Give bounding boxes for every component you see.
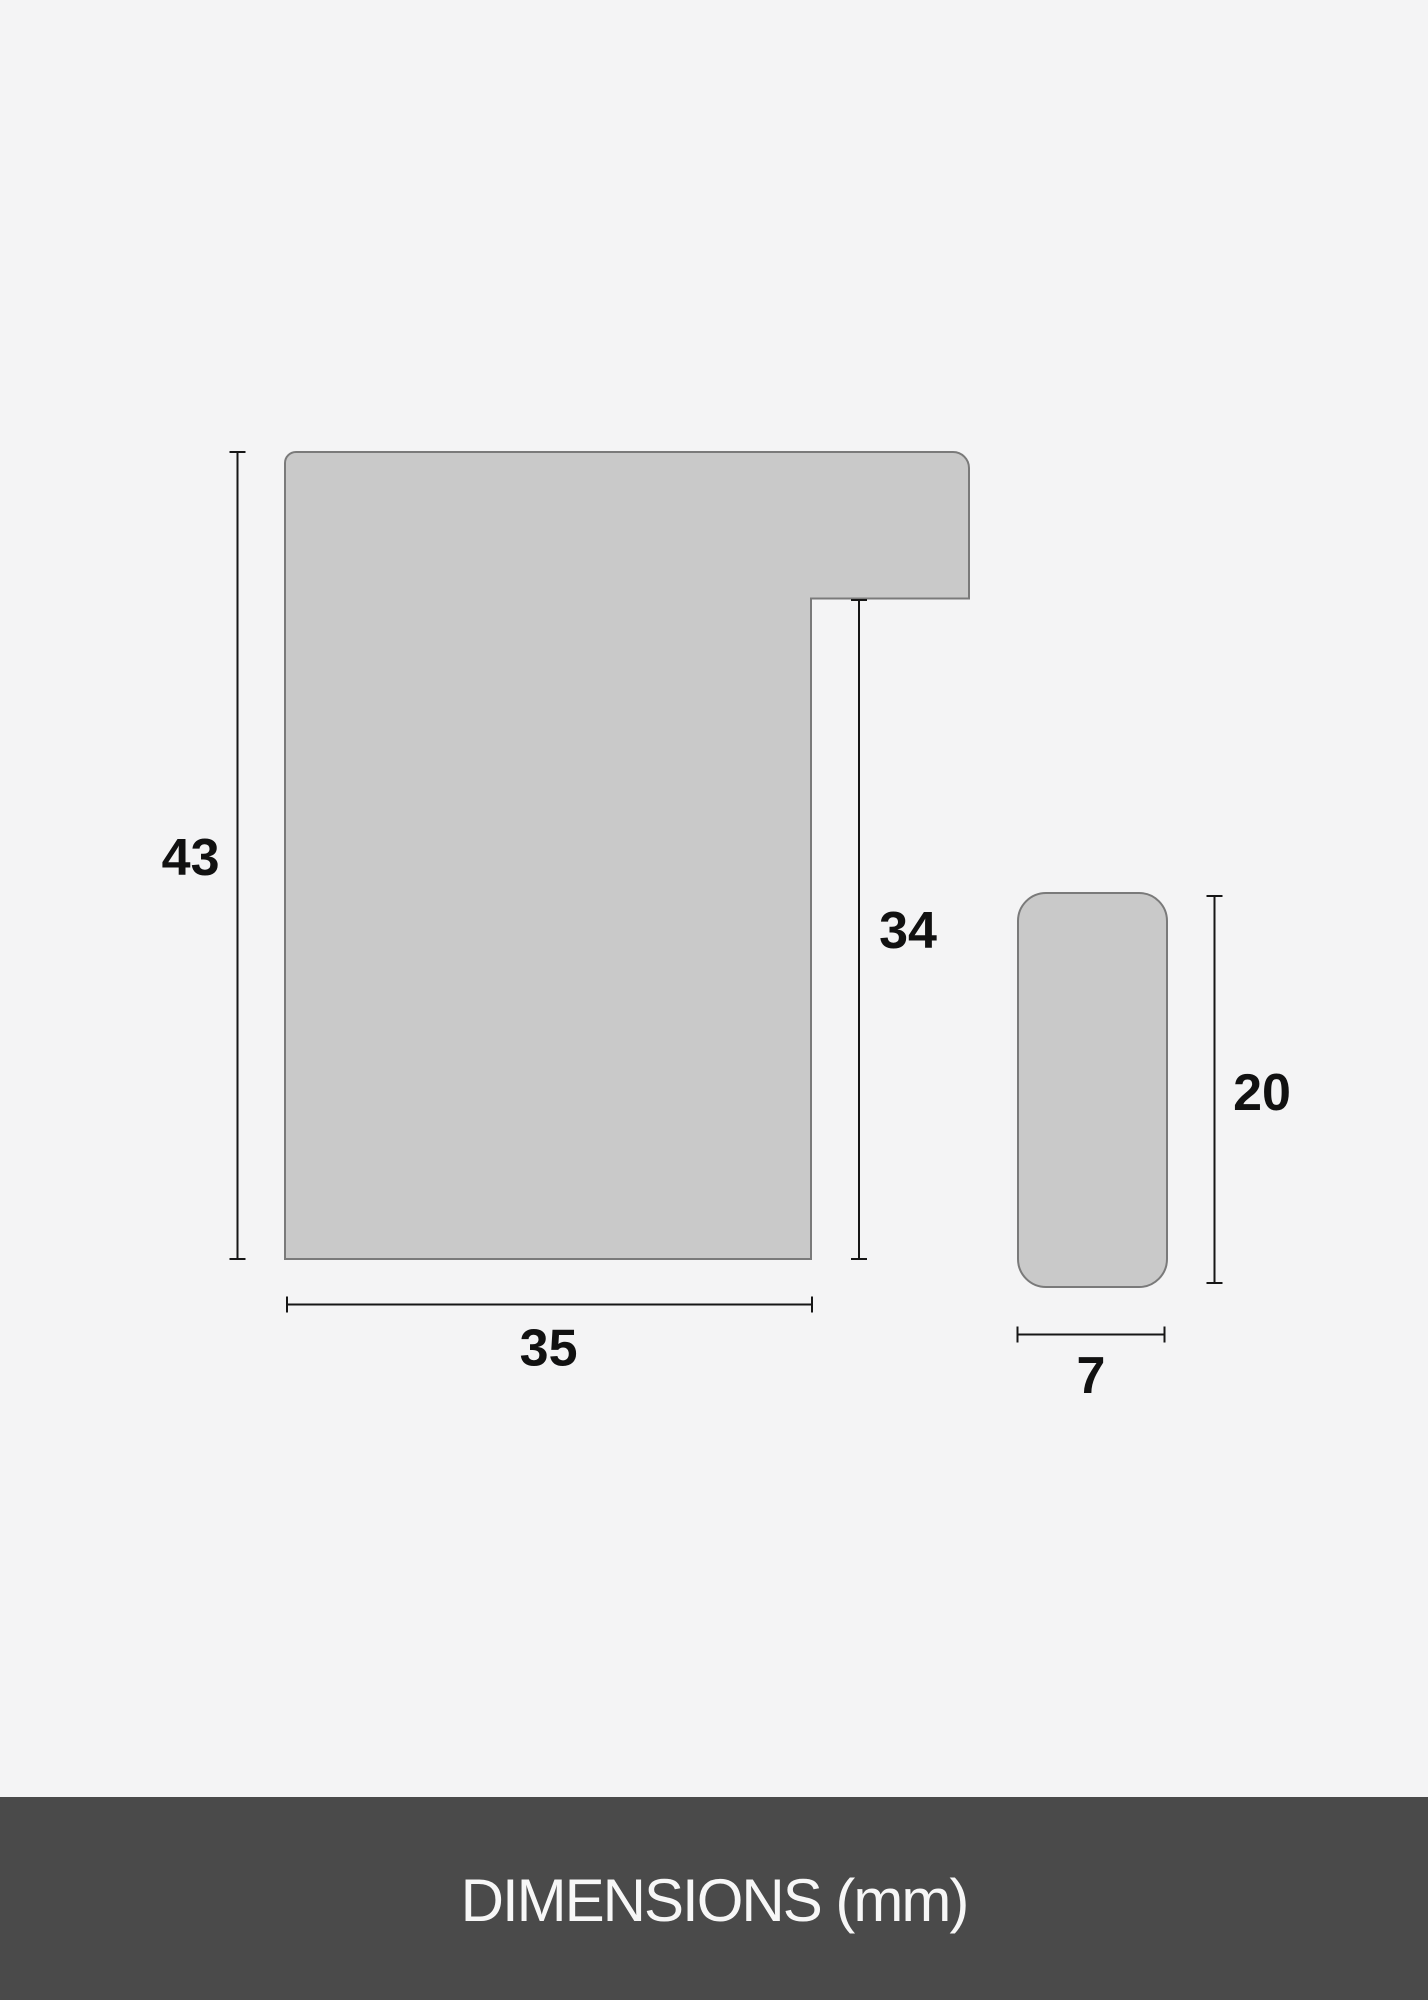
svg-text:DIMENSIONS (mm): DIMENSIONS (mm) [461, 1867, 968, 1934]
svg-text:20: 20 [1233, 1064, 1291, 1122]
svg-text:35: 35 [520, 1320, 578, 1378]
svg-text:7: 7 [1077, 1347, 1106, 1405]
svg-text:34: 34 [879, 902, 937, 960]
svg-text:43: 43 [162, 829, 220, 887]
